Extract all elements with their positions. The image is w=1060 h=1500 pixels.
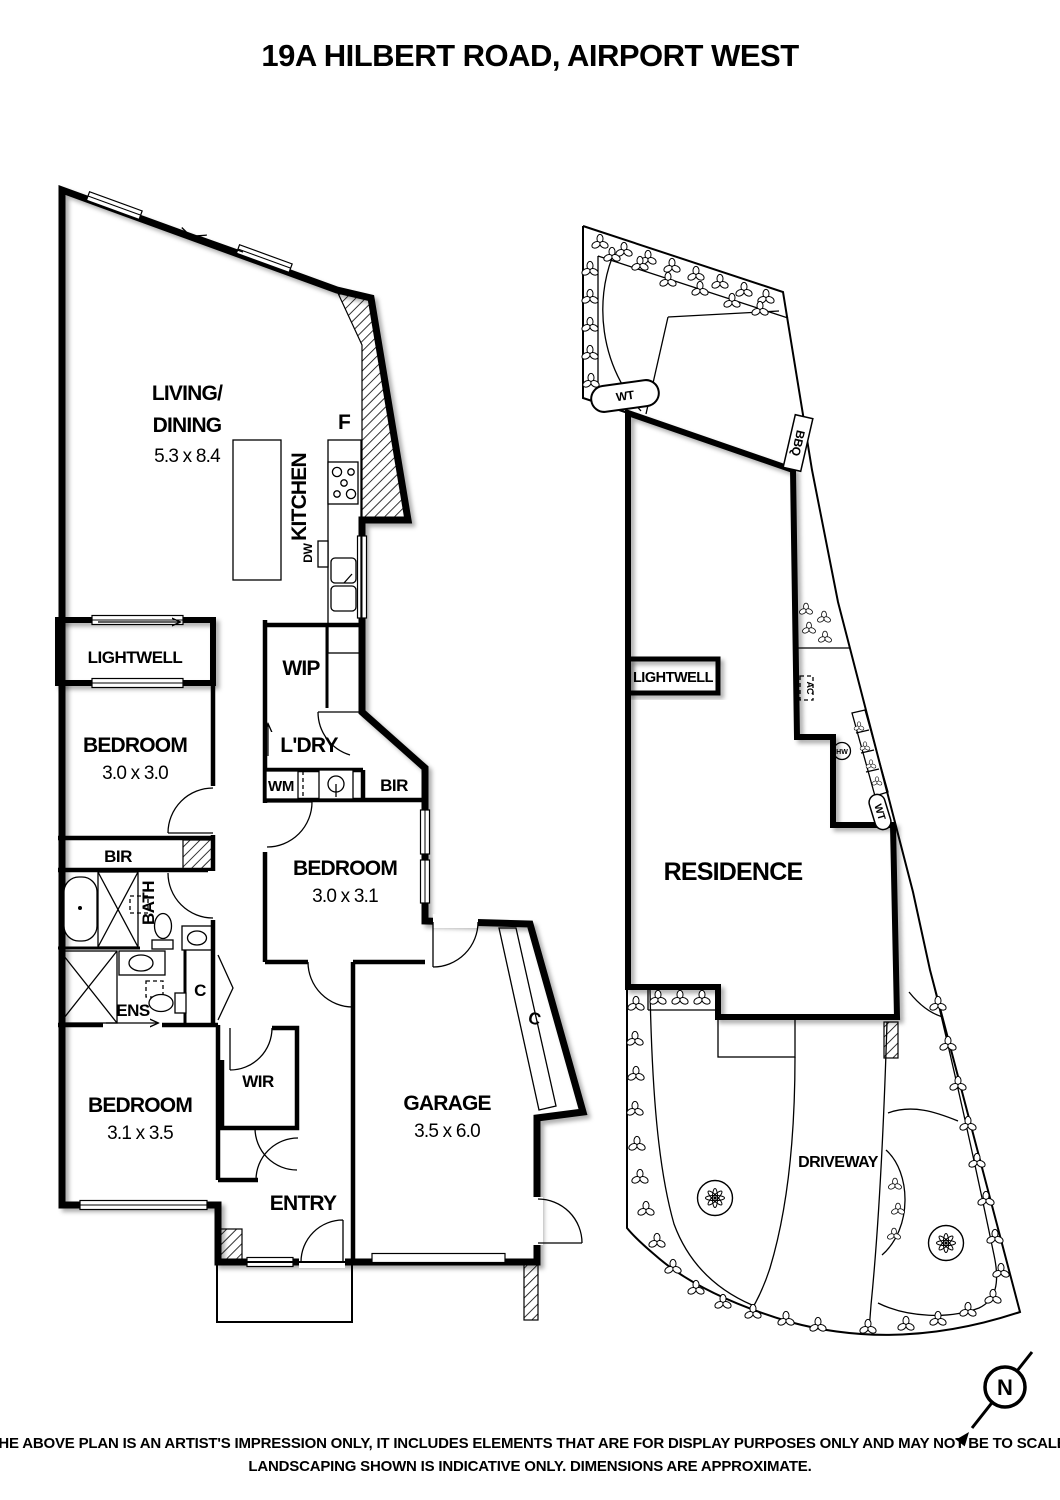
page-title: 19A HILBERT ROAD, AIRPORT WEST	[261, 38, 799, 73]
laundry-trough-icon	[319, 770, 353, 799]
driveway-label: DRIVEWAY	[798, 1154, 879, 1171]
stove-icon	[328, 462, 358, 504]
bedroom1-dims: 3.0 x 3.0	[102, 763, 168, 784]
door-arc	[230, 1028, 272, 1070]
wip-label: WIP	[282, 657, 320, 680]
garage-cupboard-label: C	[526, 1008, 542, 1029]
shower-icon	[98, 872, 138, 947]
ac-unit: AC	[800, 676, 815, 700]
garage-dims: 3.5 x 6.0	[414, 1121, 480, 1142]
living-label-line2: DINING	[153, 414, 222, 437]
tree-icons	[698, 1181, 964, 1261]
living-dims: 5.3 x 8.4	[154, 446, 221, 467]
door-arc	[538, 1199, 582, 1243]
entry-porch	[217, 1262, 352, 1322]
fridge-label: F	[338, 411, 351, 434]
residence-outline	[628, 413, 897, 1017]
window	[92, 679, 183, 688]
window	[80, 1201, 207, 1210]
site-lightwell-label: LIGHTWELL	[633, 670, 714, 686]
dishwasher-icon	[318, 541, 328, 567]
door-arc	[168, 788, 213, 833]
entry-label: ENTRY	[270, 1192, 337, 1215]
bir-hall-label: BIR	[380, 776, 408, 795]
bath-label: BATH	[139, 881, 158, 925]
lightwell-label: LIGHTWELL	[88, 648, 183, 667]
bir-bedroom1-label: BIR	[104, 847, 132, 866]
wt-rear-label: WT	[615, 388, 636, 405]
basin-icon	[182, 926, 212, 950]
door-arc	[256, 1138, 298, 1180]
window	[421, 810, 430, 854]
wm-label: WM	[268, 778, 294, 795]
wir-label: WIR	[242, 1072, 274, 1091]
door-arc	[267, 802, 312, 847]
bathtub-icon	[64, 877, 97, 941]
dishwasher-label: DW	[301, 542, 315, 562]
floorplan-page: 19A HILBERT ROAD, AIRPORT WEST	[0, 0, 1060, 1500]
bedroom3-label: BEDROOM	[88, 1094, 192, 1117]
door-arc	[168, 873, 213, 918]
kitchen-label: KITCHEN	[288, 453, 311, 541]
shower-icon	[60, 951, 117, 1023]
toilet-icon	[149, 993, 186, 1013]
floorplan-canvas: 19A HILBERT ROAD, AIRPORT WEST	[0, 0, 1060, 1500]
north-compass: N	[956, 1352, 1032, 1446]
door-arc	[308, 962, 353, 1007]
window	[358, 536, 367, 618]
hw-label: HW	[836, 749, 848, 756]
living-label-line1: LIVING/	[152, 382, 223, 405]
bedroom2-dims: 3.0 x 3.1	[312, 886, 378, 907]
door-arc	[433, 922, 478, 967]
disclaimer-line2: LANDSCAPING SHOWN IS INDICATIVE ONLY. DI…	[248, 1458, 811, 1475]
water-tank-rear: WT	[590, 378, 661, 413]
unit-floor-plan: LIVING/ DINING 5.3 x 8.4 F KITCHEN DW LI…	[58, 190, 583, 1322]
hot-water-unit: HW	[834, 743, 851, 760]
site-plan: WT BBQ AC HW WT	[581, 226, 1020, 1335]
garage-label: GARAGE	[403, 1092, 491, 1115]
bedroom3-dims: 3.1 x 3.5	[107, 1123, 173, 1144]
window	[92, 616, 183, 625]
hatched-pillar	[884, 1022, 898, 1058]
door-arc	[255, 1128, 297, 1170]
cupboard-door-zigzag	[218, 955, 233, 1020]
garage-door	[372, 1254, 505, 1263]
island-bench	[233, 440, 281, 580]
basin-icon	[119, 951, 165, 975]
bedroom2-label: BEDROOM	[293, 857, 397, 880]
residence-label: RESIDENCE	[664, 858, 803, 886]
north-label: N	[997, 1375, 1013, 1400]
bedroom1-label: BEDROOM	[83, 734, 187, 757]
fixtures	[60, 440, 556, 1322]
door-arc	[301, 1220, 343, 1262]
ens-label: ENS	[116, 1001, 150, 1020]
disclaimer-line1: THE ABOVE PLAN IS AN ARTIST'S IMPRESSION…	[0, 1435, 1060, 1452]
window	[421, 860, 430, 903]
laundry-label: L'DRY	[280, 734, 338, 757]
kitchen-sink-icon	[331, 558, 356, 611]
ac-label: AC	[805, 682, 815, 695]
hall-cupboard-label: C	[194, 981, 206, 1000]
